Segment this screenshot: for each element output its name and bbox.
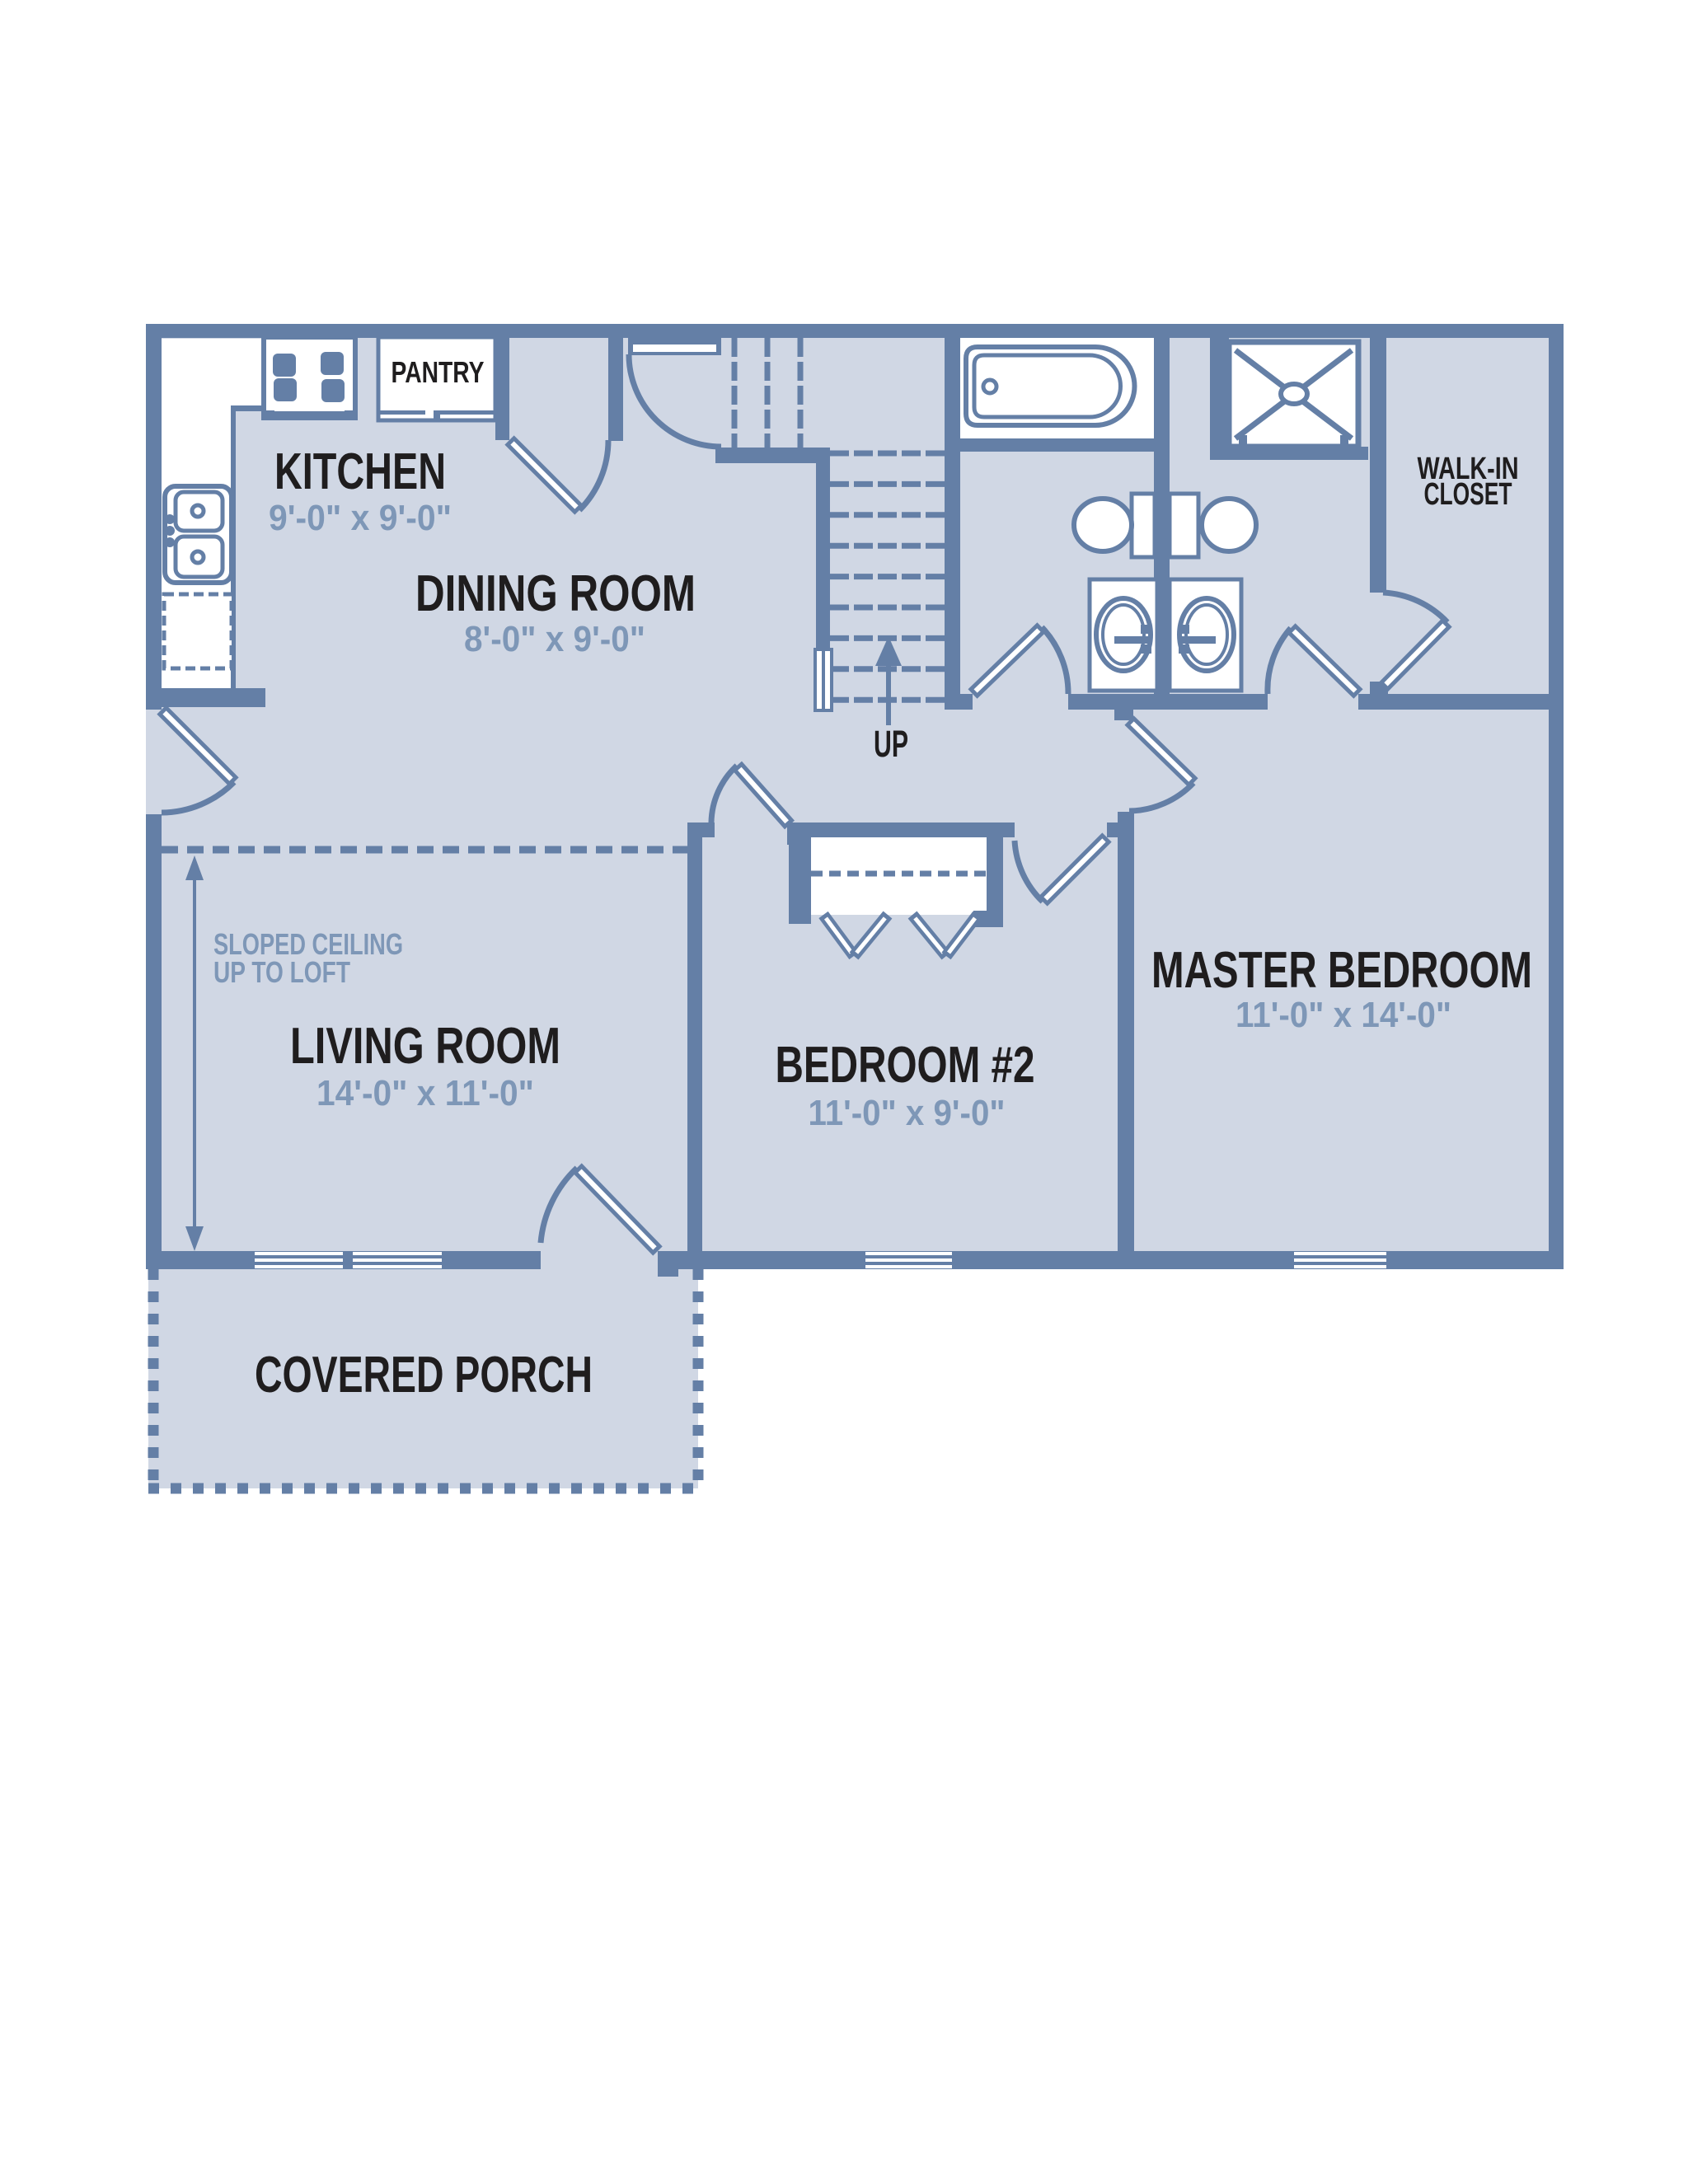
svg-text:UP: UP xyxy=(874,723,908,765)
svg-text:MASTER BEDROOM: MASTER BEDROOM xyxy=(1151,942,1532,999)
svg-text:CLOSET: CLOSET xyxy=(1424,477,1512,512)
svg-text:PANTRY: PANTRY xyxy=(392,355,485,389)
svg-text:11'-0" x 14'-0": 11'-0" x 14'-0" xyxy=(1236,995,1451,1035)
svg-text:LIVING ROOM: LIVING ROOM xyxy=(290,1018,560,1075)
svg-text:9'-0" x 9'-0": 9'-0" x 9'-0" xyxy=(269,498,452,538)
svg-text:8'-0" x 9'-0": 8'-0" x 9'-0" xyxy=(464,619,645,659)
svg-text:11'-0" x 9'-0": 11'-0" x 9'-0" xyxy=(809,1093,1006,1133)
svg-text:KITCHEN: KITCHEN xyxy=(274,443,446,500)
svg-text:BEDROOM #2: BEDROOM #2 xyxy=(776,1037,1035,1094)
svg-text:DINING ROOM: DINING ROOM xyxy=(415,565,696,622)
svg-text:14'-0" x 11'-0": 14'-0" x 11'-0" xyxy=(316,1073,534,1113)
svg-text:COVERED PORCH: COVERED PORCH xyxy=(255,1347,593,1404)
svg-text:UP TO LOFT: UP TO LOFT xyxy=(213,955,350,989)
